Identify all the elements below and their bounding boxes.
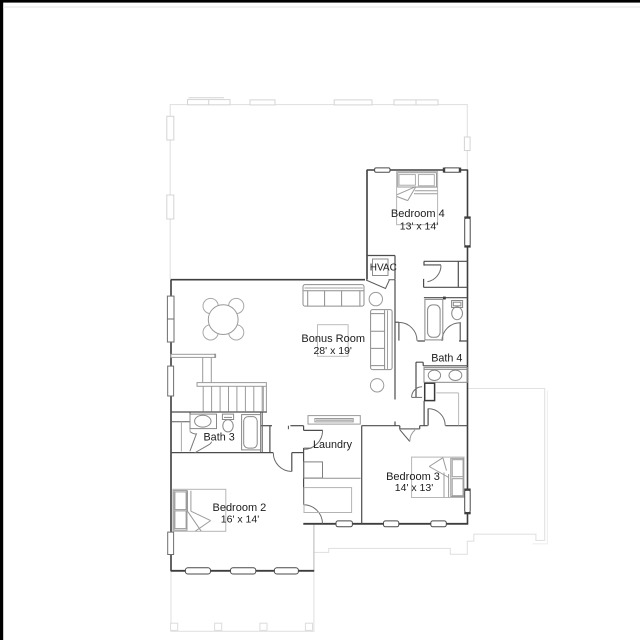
svg-text:Bonus Room: Bonus Room bbox=[301, 333, 365, 345]
svg-text:Bath 4: Bath 4 bbox=[431, 353, 462, 365]
svg-text:28' x 19': 28' x 19' bbox=[313, 345, 351, 357]
svg-text:Bath 3: Bath 3 bbox=[203, 431, 234, 443]
svg-text:16' x 14': 16' x 14' bbox=[221, 513, 259, 525]
svg-text:Bedroom 2: Bedroom 2 bbox=[212, 502, 266, 514]
svg-text:Laundry: Laundry bbox=[313, 439, 353, 451]
svg-text:Bedroom 4: Bedroom 4 bbox=[391, 208, 445, 220]
svg-text:14' x 13': 14' x 13' bbox=[395, 482, 433, 494]
svg-text:HVAC: HVAC bbox=[370, 262, 397, 273]
svg-text:13' x 14': 13' x 14' bbox=[400, 221, 438, 233]
